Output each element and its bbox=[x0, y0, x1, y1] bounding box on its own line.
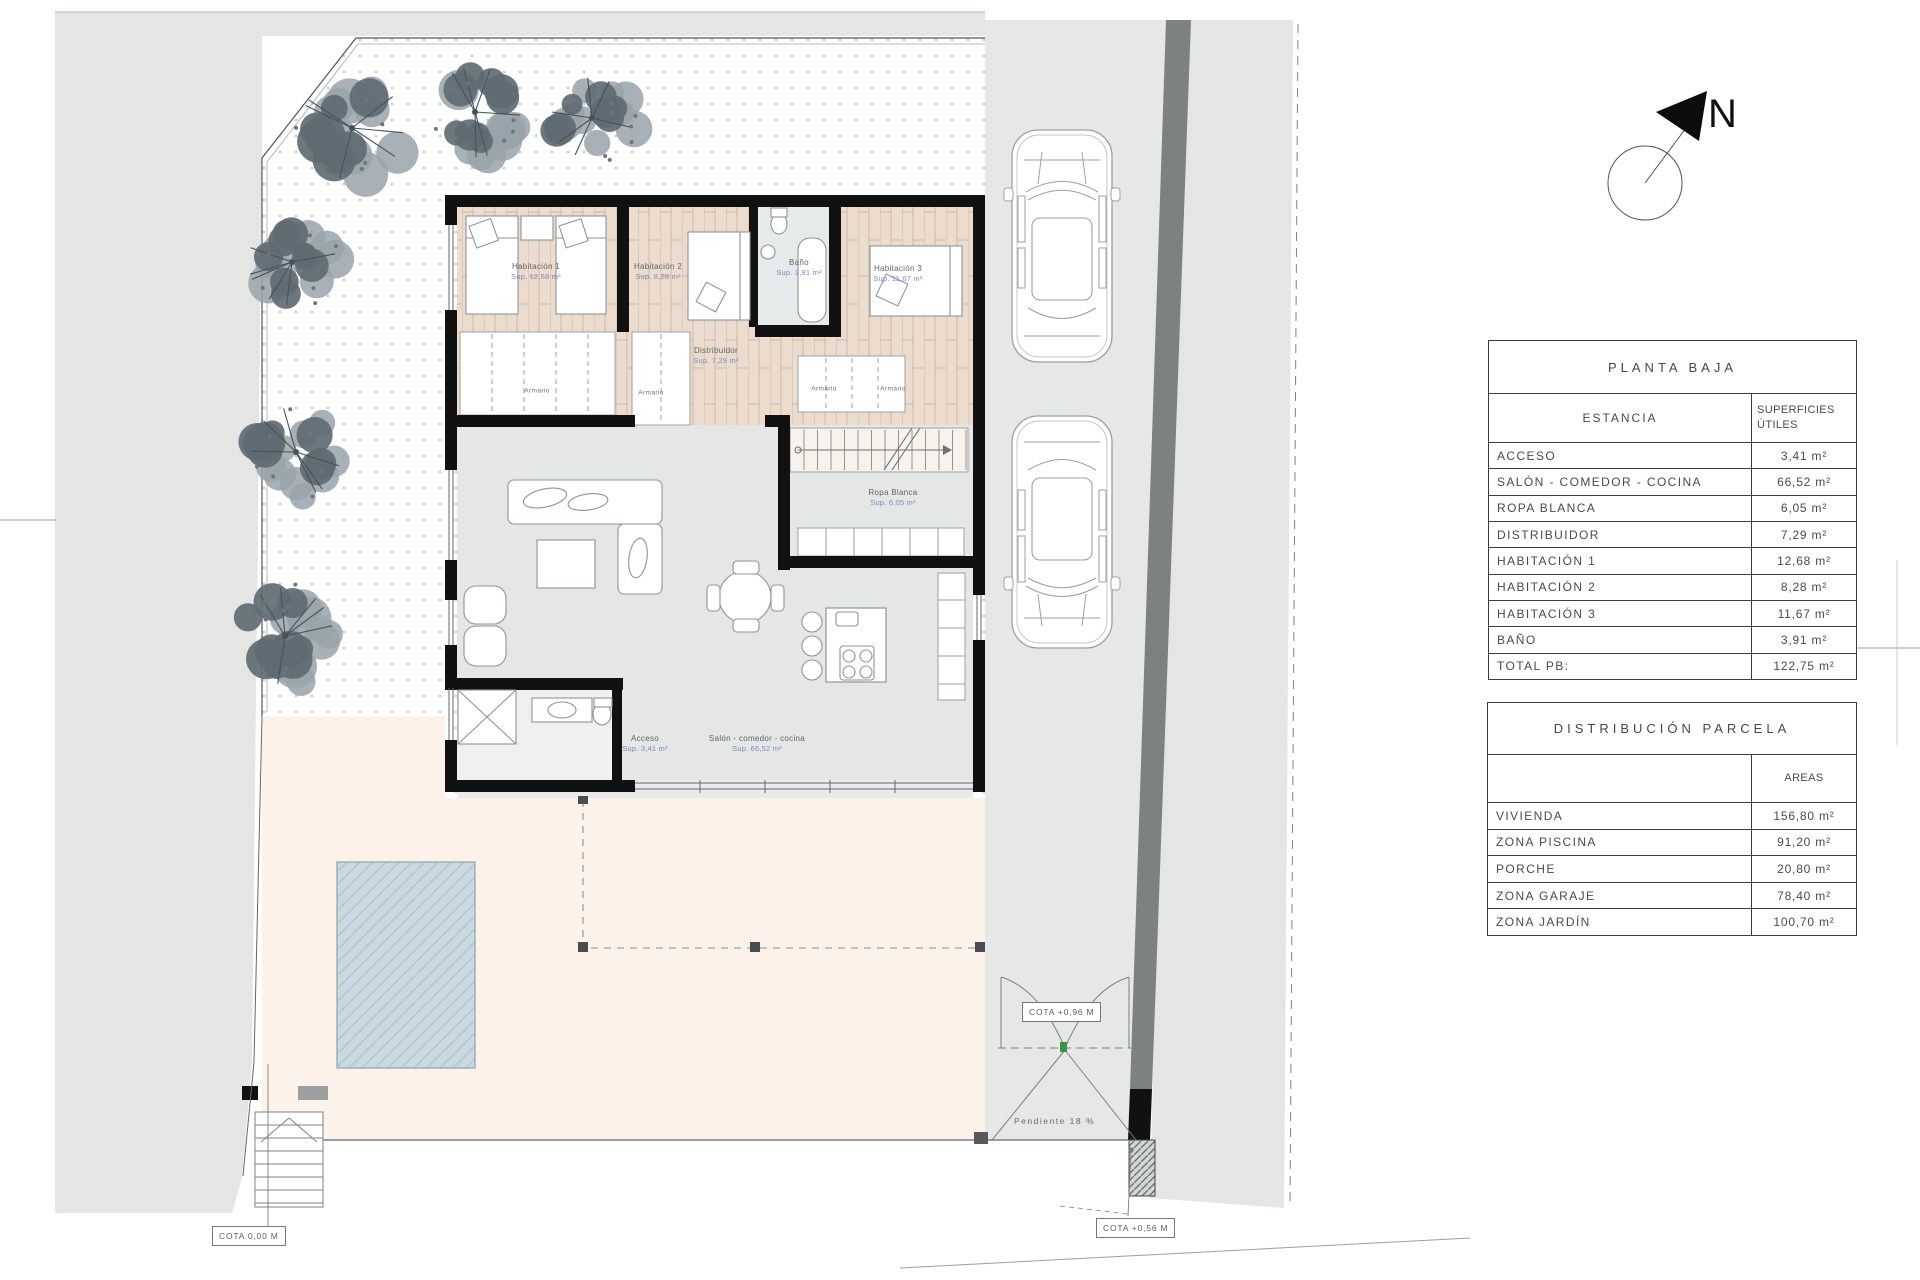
room-label-6: Ropa BlancaSup. 6,05 m² bbox=[868, 488, 917, 508]
row-label: HABITACIÓN 3 bbox=[1489, 601, 1751, 626]
row-label: ZONA GARAJE bbox=[1488, 883, 1751, 909]
table-row: ROPA BLANCA6,05 m² bbox=[1489, 496, 1856, 522]
row-label: PORCHE bbox=[1488, 856, 1751, 882]
column-header-superficies: SUPERFICIES ÚTILES bbox=[1751, 394, 1856, 442]
cota-gate-label: COTA +0,96 M bbox=[1022, 1002, 1101, 1022]
row-value: 8,28 m² bbox=[1751, 575, 1856, 600]
row-label: ACCESO bbox=[1489, 443, 1751, 468]
row-value: 78,40 m² bbox=[1751, 883, 1856, 909]
table-planta-baja: PLANTA BAJA ESTANCIA SUPERFICIES ÚTILES … bbox=[1488, 340, 1857, 680]
cota-porch-label: COTA +0,56 M bbox=[1096, 1218, 1175, 1238]
north-arrow-icon bbox=[1608, 91, 1707, 220]
table-title: DISTRIBUCIÓN PARCELA bbox=[1488, 703, 1856, 755]
car-2 bbox=[1004, 416, 1120, 648]
row-label: HABITACIÓN 1 bbox=[1489, 548, 1751, 573]
table-row: HABITACIÓN 311,67 m² bbox=[1489, 601, 1856, 627]
row-label: VIVIENDA bbox=[1488, 803, 1751, 829]
room-label-7: AccesoSup. 3,41 m² bbox=[622, 734, 667, 754]
row-label: ROPA BLANCA bbox=[1489, 496, 1751, 521]
table-row: HABITACIÓN 112,68 m² bbox=[1489, 548, 1856, 574]
north-label: N bbox=[1708, 92, 1737, 137]
column-header-blank bbox=[1488, 755, 1751, 802]
table-row: PORCHE20,80 m² bbox=[1488, 856, 1856, 883]
slope-label: Pendiente 18 % bbox=[1014, 1116, 1095, 1126]
table-row: BAÑO3,91 m² bbox=[1489, 627, 1856, 653]
room-label-3: BañoSup. 3,91 m² bbox=[776, 258, 821, 278]
table-distribucion-parcela: DISTRIBUCIÓN PARCELA AREAS VIVIENDA156,8… bbox=[1487, 702, 1857, 936]
exterior-steps bbox=[255, 1112, 323, 1207]
row-value: 6,05 m² bbox=[1751, 496, 1856, 521]
table-rows: VIVIENDA156,80 m²ZONA PISCINA91,20 m²POR… bbox=[1488, 803, 1856, 935]
wardrobe-label: Armario bbox=[524, 388, 550, 395]
column-header-areas: AREAS bbox=[1751, 755, 1856, 802]
table-row: ZONA JARDÍN100,70 m² bbox=[1488, 909, 1856, 935]
row-label: TOTAL PB: bbox=[1489, 654, 1751, 679]
wardrobe-label: Armario bbox=[811, 386, 837, 393]
row-label: DISTRIBUIDOR bbox=[1489, 522, 1751, 547]
room-label-8: Salón - comedor - cocinaSup. 66,52 m² bbox=[709, 734, 805, 754]
row-value: 12,68 m² bbox=[1751, 548, 1856, 573]
table-row: SALÓN - COMEDOR - COCINA66,52 m² bbox=[1489, 469, 1856, 495]
table-row: ZONA GARAJE78,40 m² bbox=[1488, 883, 1856, 910]
table-row: HABITACIÓN 28,28 m² bbox=[1489, 575, 1856, 601]
row-value: 20,80 m² bbox=[1751, 856, 1856, 882]
table-row: TOTAL PB:122,75 m² bbox=[1489, 654, 1856, 679]
column-header-estancia: ESTANCIA bbox=[1489, 394, 1751, 442]
table-row: DISTRIBUIDOR7,29 m² bbox=[1489, 522, 1856, 548]
table-row: ACCESO3,41 m² bbox=[1489, 443, 1856, 469]
car-1 bbox=[1004, 130, 1120, 362]
row-value: 156,80 m² bbox=[1751, 803, 1856, 829]
room-label-1: Habitación 1Sup. 12,68 m² bbox=[511, 262, 561, 282]
table-header: AREAS bbox=[1488, 755, 1856, 803]
row-value: 122,75 m² bbox=[1751, 654, 1856, 679]
pool bbox=[337, 862, 475, 1068]
table-header: ESTANCIA SUPERFICIES ÚTILES bbox=[1489, 394, 1856, 443]
row-value: 7,29 m² bbox=[1751, 522, 1856, 547]
row-value: 91,20 m² bbox=[1751, 830, 1856, 856]
cota-street-label: COTA 0,00 M bbox=[212, 1226, 286, 1246]
room-label-2: Habitación 2Sup. 8,28 m² bbox=[634, 262, 682, 282]
row-label: BAÑO bbox=[1489, 627, 1751, 652]
row-value: 3,41 m² bbox=[1751, 443, 1856, 468]
row-label: HABITACIÓN 2 bbox=[1489, 575, 1751, 600]
wardrobe-label: Armario bbox=[638, 390, 664, 397]
row-value: 66,52 m² bbox=[1751, 469, 1856, 494]
room-label-4: Habitación 3Sup. 11,67 m² bbox=[873, 264, 922, 284]
row-value: 3,91 m² bbox=[1751, 627, 1856, 652]
table-title: PLANTA BAJA bbox=[1489, 341, 1856, 394]
table-rows: ACCESO3,41 m²SALÓN - COMEDOR - COCINA66,… bbox=[1489, 443, 1856, 679]
row-label: ZONA PISCINA bbox=[1488, 830, 1751, 856]
table-row: ZONA PISCINA91,20 m² bbox=[1488, 830, 1856, 857]
row-label: ZONA JARDÍN bbox=[1488, 909, 1751, 935]
wardrobe-label: Armario bbox=[880, 386, 906, 393]
row-value: 11,67 m² bbox=[1751, 601, 1856, 626]
table-row: VIVIENDA156,80 m² bbox=[1488, 803, 1856, 830]
row-value: 100,70 m² bbox=[1751, 909, 1856, 935]
floor-plan-sheet: N COTA 0,00 M COTA +0,96 M COTA +0,56 M … bbox=[0, 0, 1920, 1280]
row-label: SALÓN - COMEDOR - COCINA bbox=[1489, 469, 1751, 494]
room-label-5: DistribuidorSup. 7,29 m² bbox=[693, 346, 738, 366]
